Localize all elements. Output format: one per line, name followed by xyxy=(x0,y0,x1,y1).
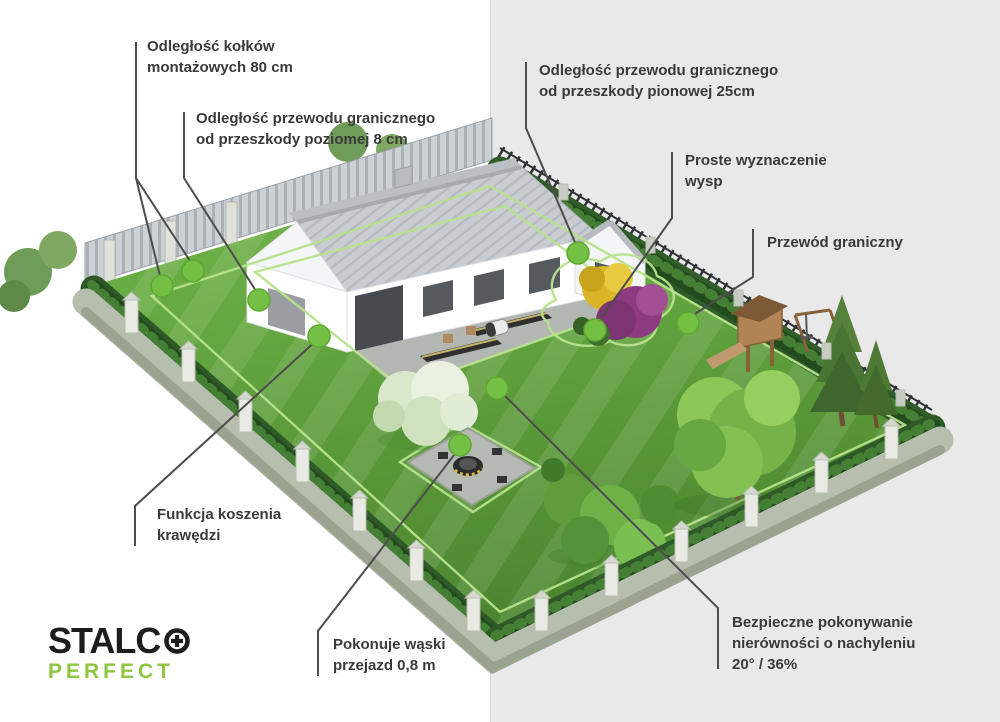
chair xyxy=(466,326,476,335)
wire-marker-dot xyxy=(248,289,270,311)
callout-text: 20° / 36% xyxy=(732,654,962,675)
callout-label-boundary-wire: Przewód graniczny xyxy=(767,232,903,253)
infographic-stage: Odległość kołków montażowych 80 cm Odleg… xyxy=(0,0,1000,722)
callout-text: Pokonuje wąski xyxy=(333,634,483,655)
callout-text: od przeszkody poziomej 8 cm xyxy=(196,129,466,150)
callout-label-wire-vertical-obstacle: Odległość przewodu granicznego od przesz… xyxy=(539,60,819,102)
wire-marker-dot xyxy=(677,312,699,334)
brand-sub-text: PERFECT xyxy=(48,660,191,684)
callout-label-island-marking: Proste wyznaczenie wysp xyxy=(685,150,865,192)
wire-marker-dot xyxy=(584,319,606,341)
callout-text: Odległość przewodu granicznego xyxy=(539,60,819,81)
brand-logo: STALC PERFECT xyxy=(48,624,191,684)
callout-text: Proste wyznaczenie xyxy=(685,150,865,171)
callout-label-peg-spacing: Odległość kołków montażowych 80 cm xyxy=(147,36,327,78)
wire-marker-dot xyxy=(449,434,471,456)
callout-text: Odległość kołków xyxy=(147,36,327,57)
callout-text: przejazd 0,8 m xyxy=(333,655,483,676)
chimney xyxy=(395,166,412,188)
callout-text: wysp xyxy=(685,171,865,192)
callout-text: Funkcja koszenia xyxy=(157,504,327,525)
circle-plus-icon xyxy=(163,627,191,655)
wire-marker-dot xyxy=(151,275,173,297)
callout-label-narrow-passage: Pokonuje wąski przejazd 0,8 m xyxy=(333,634,483,676)
callout-label-slope-handling: Bezpieczne pokonywanie nierówności o nac… xyxy=(732,612,962,675)
callout-text: nierówności o nachyleniu xyxy=(732,633,962,654)
wire-marker-dot xyxy=(486,377,508,399)
callout-text: krawędzi xyxy=(157,525,327,546)
chair xyxy=(443,334,453,343)
callout-label-wire-horizontal-obstacle: Odległość przewodu granicznego od przesz… xyxy=(196,108,466,150)
callout-text: Przewód graniczny xyxy=(767,232,903,253)
callout-text: Bezpieczne pokonywanie xyxy=(732,612,962,633)
wire-marker-dot xyxy=(567,242,589,264)
callout-text: montażowych 80 cm xyxy=(147,57,327,78)
callout-label-edge-mowing: Funkcja koszenia krawędzi xyxy=(157,504,327,546)
wire-marker-dot xyxy=(182,260,204,282)
callout-text: od przeszkody pionowej 25cm xyxy=(539,81,819,102)
brand-name-text: STALC xyxy=(48,624,160,658)
callout-text: Odległość przewodu granicznego xyxy=(196,108,466,129)
wire-marker-dot xyxy=(308,325,330,347)
